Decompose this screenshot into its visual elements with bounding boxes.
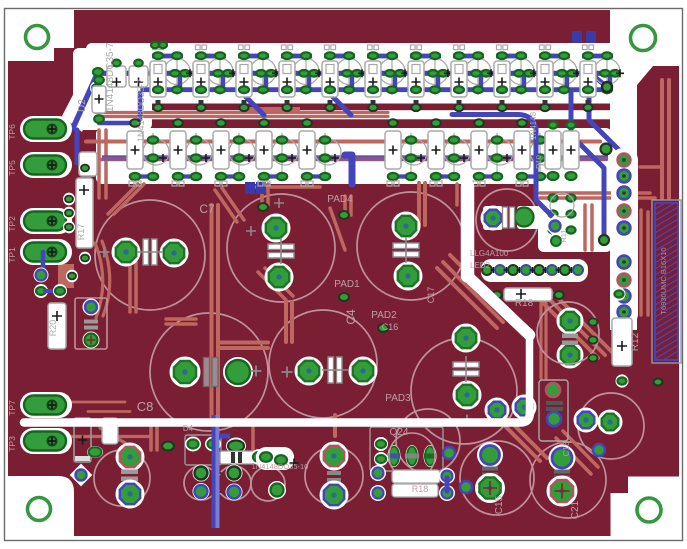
svg-text:C16: C16	[382, 322, 399, 332]
svg-text:C15: C15	[494, 495, 505, 514]
svg-text:PAD4: PAD4	[327, 194, 353, 205]
svg-text:TP7: TP7	[7, 400, 17, 416]
svg-text:TP2: TP2	[7, 216, 17, 232]
svg-text:D2: D2	[77, 99, 88, 112]
svg-text:TP1: TP1	[7, 247, 17, 263]
svg-text:R18: R18	[412, 484, 429, 494]
svg-text:R18: R18	[515, 298, 534, 309]
svg-text:TP6: TP6	[7, 124, 17, 140]
svg-text:R17: R17	[76, 224, 86, 241]
svg-text:R11: R11	[559, 229, 568, 242]
svg-text:D4: D4	[183, 424, 194, 433]
svg-text:TP5: TP5	[7, 160, 17, 176]
svg-text:Q24: Q24	[390, 427, 409, 438]
svg-text:R10: R10	[534, 155, 543, 169]
svg-text:LLG4A100: LLG4A100	[470, 249, 509, 258]
svg-text:C21: C21	[570, 500, 581, 519]
svg-text:1N4148DO35-7: 1N4148DO35-7	[136, 79, 146, 142]
svg-text:C7: C7	[199, 202, 215, 216]
svg-text:1N4148: 1N4148	[529, 111, 538, 140]
svg-text:PAD3: PAD3	[385, 393, 411, 404]
svg-text:1N4148DC35-7: 1N4148DC35-7	[105, 42, 116, 112]
svg-text:C4: C4	[344, 309, 358, 325]
svg-text:T6930UMC B16X10: T6930UMC B16X10	[659, 247, 668, 314]
svg-text:PAD2: PAD2	[371, 310, 397, 321]
svg-text:R12: R12	[630, 332, 641, 351]
svg-text:PAD1: PAD1	[334, 279, 360, 290]
svg-text:R20: R20	[48, 320, 58, 337]
svg-text:C17: C17	[426, 287, 436, 304]
svg-text:TP3: TP3	[7, 436, 17, 452]
svg-text:C18: C18	[562, 441, 571, 456]
svg-text:LED2: LED2	[470, 261, 491, 270]
svg-text:C8: C8	[137, 399, 154, 414]
svg-text:1N4148DO35-10: 1N4148DO35-10	[252, 462, 309, 471]
